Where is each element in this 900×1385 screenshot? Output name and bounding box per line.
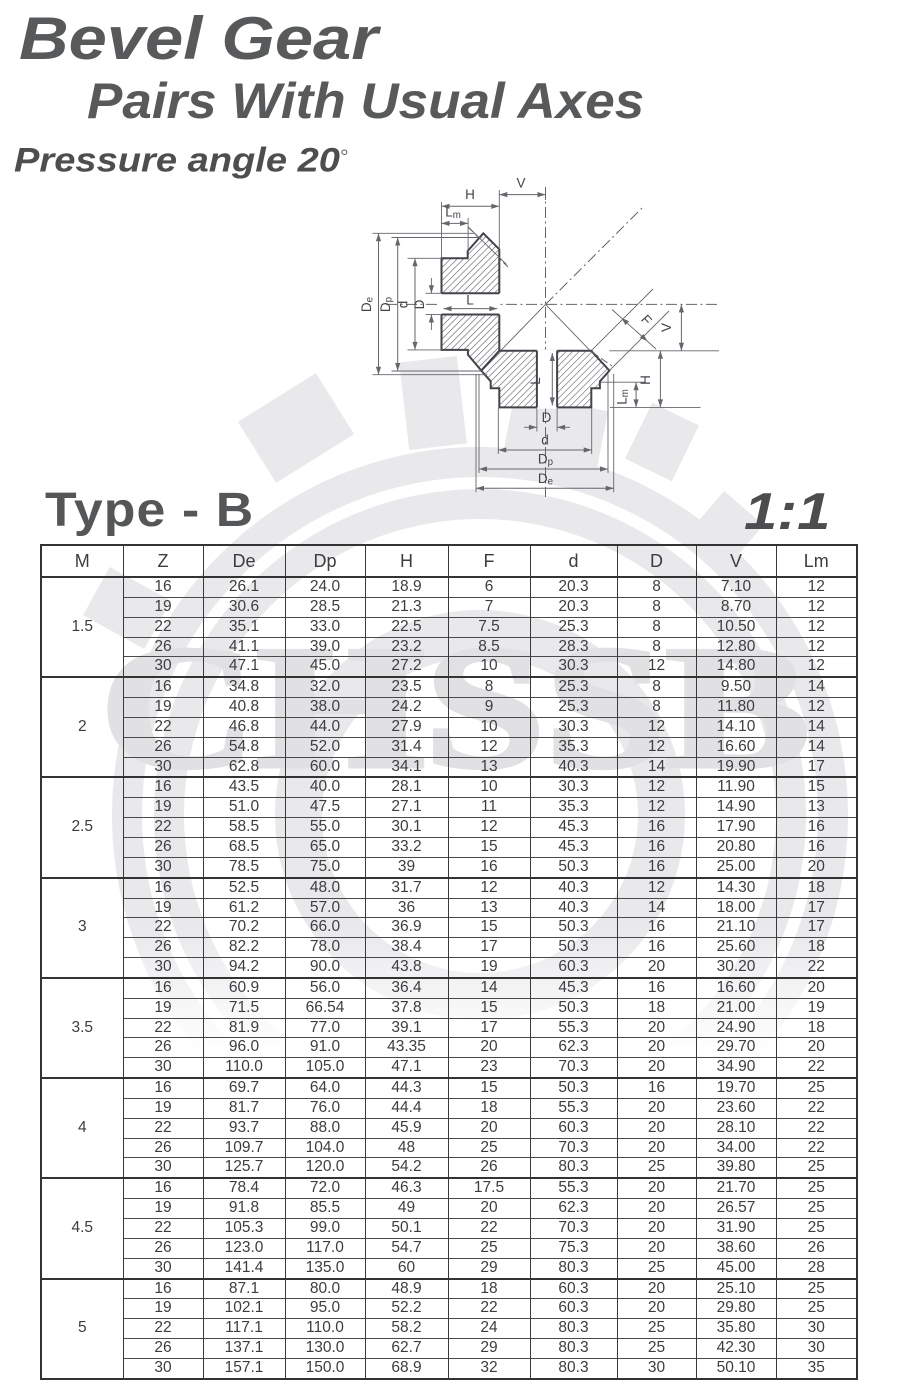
svg-text:H: H [638, 375, 653, 385]
svg-text:Dp: Dp [538, 452, 553, 469]
svg-text:D: D [542, 410, 552, 425]
svg-text:Dp: Dp [378, 297, 395, 312]
svg-text:D: D [412, 299, 427, 309]
svg-text:V: V [659, 323, 674, 332]
svg-text:L: L [466, 293, 474, 308]
svg-text:L: L [528, 377, 543, 385]
svg-text:Lm: Lm [615, 389, 632, 405]
svg-text:F: F [638, 312, 655, 328]
svg-text:H: H [465, 187, 475, 202]
svg-text:Lm: Lm [445, 205, 461, 222]
svg-text:d: d [541, 433, 549, 448]
svg-text:De: De [359, 297, 376, 312]
svg-text:d: d [396, 301, 411, 309]
svg-text:V: V [516, 175, 525, 190]
svg-text:De: De [538, 471, 553, 488]
